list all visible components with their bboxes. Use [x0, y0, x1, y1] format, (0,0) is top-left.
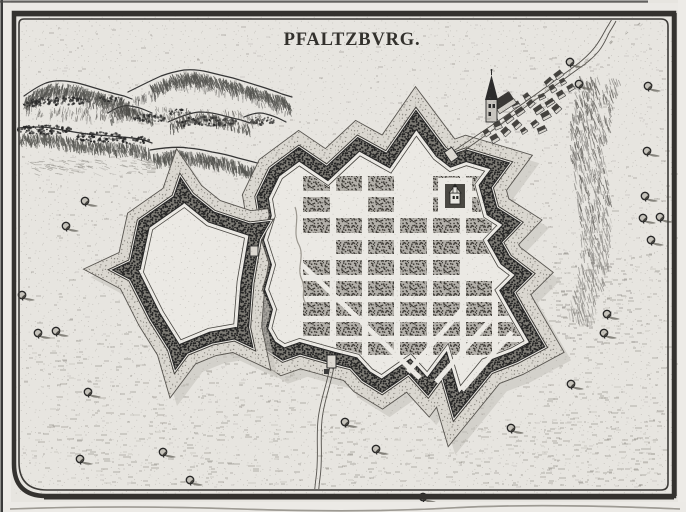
svg-text:PFALTZBVRG.: PFALTZBVRG. — [284, 30, 421, 50]
